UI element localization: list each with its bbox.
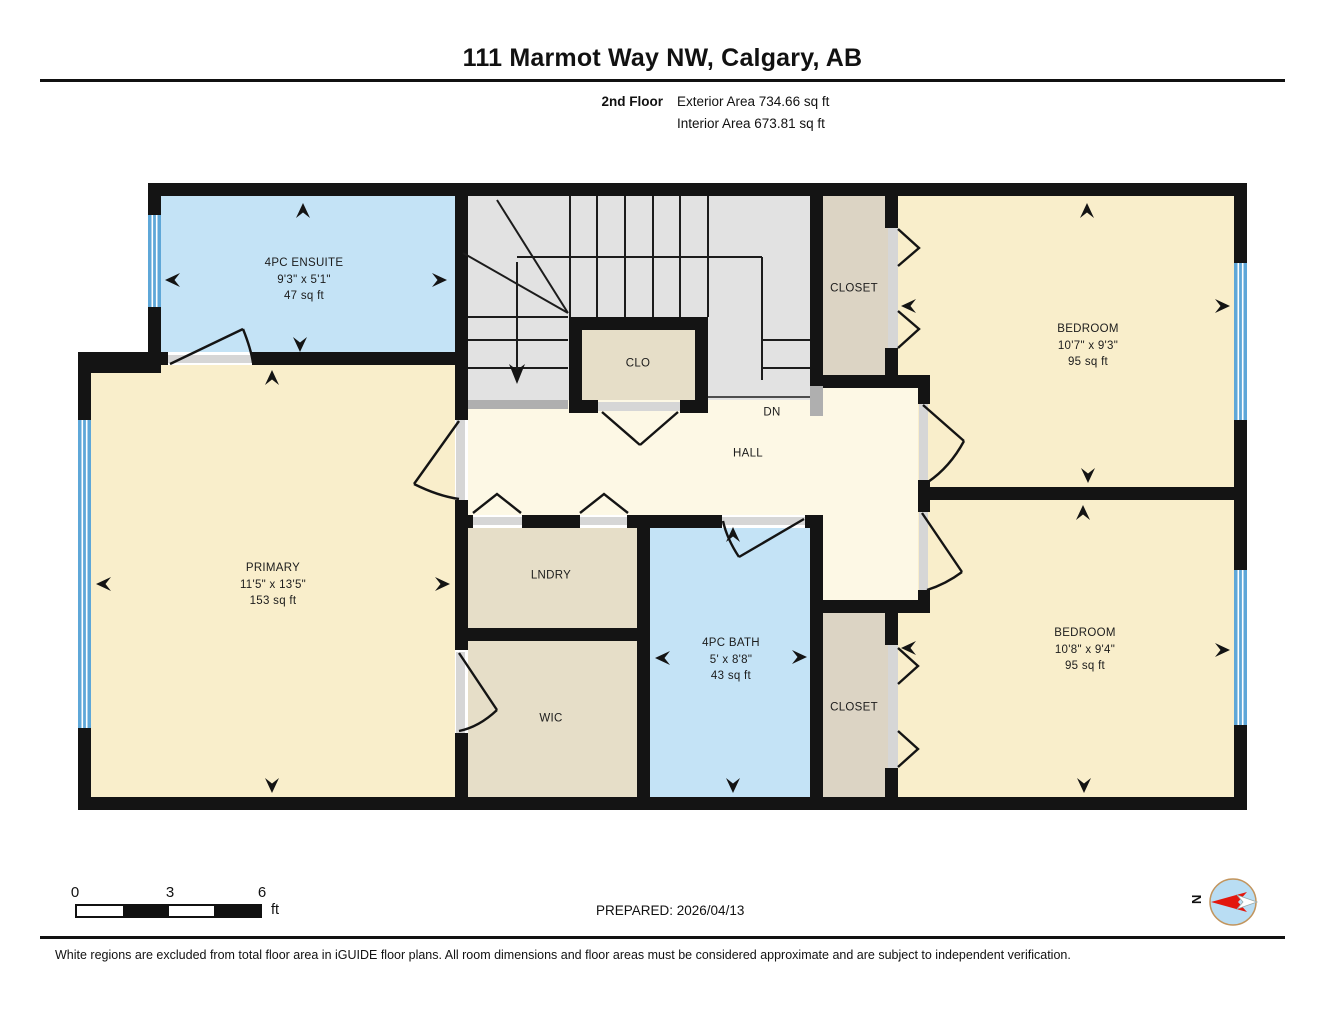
room-label-ensuite: 4PC ENSUITE 9'3" x 5'1" 47 sq ft [265,255,344,305]
room-name: DN [763,405,780,422]
room-label-bath: 4PC BATH 5' x 8'8" 43 sq ft [702,635,760,685]
room-name: 4PC BATH [702,635,760,652]
room-label-closet-top: CLOSET [830,281,878,298]
room-label-clo: CLO [626,356,651,373]
floorplan-page: 111 Marmot Way NW, Calgary, AB 2nd Floor… [0,0,1325,1024]
room-name: HALL [733,446,763,463]
floor-plan-drawing [0,0,1325,1024]
room-name: 4PC ENSUITE [265,255,344,272]
scale-segment [169,906,215,916]
room-area: 153 sq ft [240,593,306,610]
compass-icon: N [1185,872,1269,932]
scale-unit-label: ft [271,902,279,918]
room-dims: 10'7" x 9'3" [1057,338,1119,355]
room-dims: 9'3" x 5'1" [265,272,344,289]
room-area: 43 sq ft [702,668,760,685]
footer-divider [40,936,1285,939]
room-area: 95 sq ft [1057,354,1119,371]
room-label-lndry: LNDRY [531,568,571,585]
room-area: 95 sq ft [1054,658,1116,675]
room-dims: 5' x 8'8" [702,652,760,669]
room-name: PRIMARY [240,560,306,577]
scale-segment [214,906,260,916]
scale-tick-3: 3 [162,884,178,901]
room-name: CLOSET [830,281,878,298]
scale-tick-6: 6 [254,884,270,901]
room-label-hall: HALL [733,446,763,463]
room-name: BEDROOM [1057,321,1119,338]
room-label-primary: PRIMARY 11'5" x 13'5" 153 sq ft [240,560,306,610]
room-name: WIC [539,711,562,728]
room-name: CLOSET [830,700,878,717]
scale-segment [77,906,123,916]
scale-tick-0: 0 [67,884,83,901]
compass-north-label: N [1189,895,1204,904]
room-label-bedroom-bottom: BEDROOM 10'8" x 9'4" 95 sq ft [1054,625,1116,675]
stairs-dn-label: DN [763,405,780,422]
room-area: 47 sq ft [265,288,344,305]
room-name: BEDROOM [1054,625,1116,642]
room-dims: 10'8" x 9'4" [1054,642,1116,659]
room-name: CLO [626,356,651,373]
room-name: LNDRY [531,568,571,585]
room-label-closet-bottom: CLOSET [830,700,878,717]
scale-bar [75,904,262,918]
room-label-bedroom-top: BEDROOM 10'7" x 9'3" 95 sq ft [1057,321,1119,371]
disclaimer-text: White regions are excluded from total fl… [55,948,1071,962]
room-label-wic: WIC [539,711,562,728]
scale-segment [123,906,169,916]
prepared-date: PREPARED: 2026/04/13 [596,903,744,918]
room-dims: 11'5" x 13'5" [240,577,306,594]
